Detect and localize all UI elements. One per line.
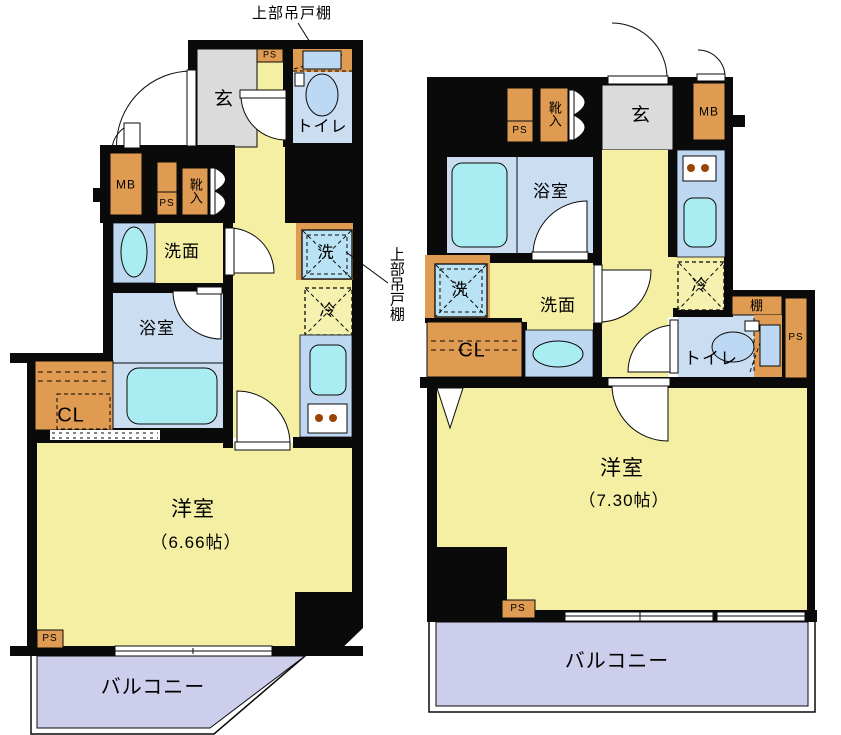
door-leaf bbox=[124, 123, 140, 148]
annotation-top-hanging-cabinet: 上部吊戸棚 bbox=[252, 6, 332, 22]
kitchen-sink bbox=[684, 198, 716, 247]
left-mb-label: MB bbox=[116, 179, 136, 192]
door-leaf bbox=[240, 90, 286, 98]
right-unit bbox=[420, 23, 817, 712]
annotation-side-hanging-cabinet: 上部吊戸棚 bbox=[388, 247, 404, 322]
washbasin bbox=[533, 341, 583, 367]
bathtub bbox=[127, 368, 217, 424]
right-ps-toilet-label: PS bbox=[788, 333, 803, 344]
door-leaf bbox=[532, 252, 588, 260]
wall bbox=[188, 40, 363, 49]
left-bathroom-label: 浴室 bbox=[139, 320, 175, 338]
right-balcony-label: バルコニー bbox=[565, 652, 670, 673]
right-entrance-label: 玄 bbox=[631, 106, 651, 126]
wall bbox=[103, 215, 113, 363]
wall bbox=[668, 150, 677, 257]
wall bbox=[293, 437, 363, 448]
right-shoe-cabinet-label: 靴入 bbox=[547, 101, 561, 127]
corridor-floor bbox=[233, 147, 285, 223]
wall bbox=[427, 388, 437, 548]
wall bbox=[352, 40, 363, 597]
left-shoe-cabinet-label: 靴入 bbox=[188, 178, 202, 204]
door-leaf bbox=[697, 74, 725, 81]
left-room-size-label: （6.66帖） bbox=[150, 534, 241, 552]
left-washroom-label: 洗面 bbox=[164, 243, 200, 261]
wall bbox=[725, 83, 733, 150]
wall bbox=[725, 150, 733, 257]
right-washroom-label: 洗面 bbox=[540, 297, 576, 315]
floorplan-image: 上部吊戸棚 上部吊戸棚 玄 トイレ PS MB PS 靴入 洗面 浴室 CL 洗… bbox=[0, 0, 841, 735]
door-swing bbox=[698, 50, 725, 77]
wall bbox=[427, 157, 447, 257]
door-leaf bbox=[670, 320, 678, 373]
wall-corner-block bbox=[427, 547, 507, 620]
left-ps-bottom-label: PS bbox=[42, 634, 57, 645]
stove bbox=[308, 404, 347, 433]
right-fridge-label: 冷 bbox=[691, 279, 708, 296]
wall-stub bbox=[93, 188, 103, 202]
bathtub bbox=[452, 163, 507, 247]
entrance-door-leaf bbox=[608, 76, 668, 84]
right-mb-label: MB bbox=[699, 106, 719, 119]
right-shelf-label: 棚 bbox=[750, 299, 764, 313]
wall-stub bbox=[733, 115, 745, 127]
kitchen-sink bbox=[310, 345, 346, 395]
toilet-handle bbox=[295, 73, 304, 86]
wall bbox=[593, 323, 602, 380]
wall-stub bbox=[10, 353, 27, 363]
left-room-label: 洋室 bbox=[171, 499, 215, 521]
left-ps-top-label: PS bbox=[263, 50, 277, 59]
left-balcony-label: バルコニー bbox=[101, 678, 206, 699]
left-closet-label: CL bbox=[57, 406, 85, 427]
door-swing bbox=[612, 23, 667, 78]
left-entrance-label: 玄 bbox=[214, 90, 234, 110]
stove-burner bbox=[329, 414, 337, 422]
right-toilet-label: トイレ bbox=[684, 350, 738, 368]
door-leaf bbox=[235, 442, 290, 450]
right-room-size-label: （7.30帖） bbox=[578, 492, 669, 510]
left-washer-label: 洗 bbox=[317, 246, 334, 263]
left-fridge-label: 冷 bbox=[319, 304, 336, 321]
stove-burner bbox=[315, 414, 323, 422]
door-leaf bbox=[225, 228, 234, 275]
wall bbox=[807, 290, 815, 620]
washbasin bbox=[121, 227, 147, 277]
right-washer-label: 洗 bbox=[451, 283, 468, 300]
toilet-bowl bbox=[306, 74, 338, 116]
stove-burner bbox=[687, 164, 695, 172]
toilet-handle bbox=[745, 321, 759, 331]
door-leaf bbox=[197, 287, 222, 294]
wall bbox=[285, 143, 363, 223]
right-ps-top-label: PS bbox=[512, 126, 527, 137]
left-unit bbox=[10, 40, 363, 734]
right-ps-bottom-label: PS bbox=[510, 604, 525, 615]
right-closet-label: CL bbox=[458, 341, 486, 362]
wall bbox=[673, 77, 693, 150]
right-room-label: 洋室 bbox=[600, 458, 644, 480]
toilet-tank bbox=[760, 325, 780, 366]
bifold-door bbox=[210, 168, 215, 215]
stove-burner bbox=[701, 164, 709, 172]
right-bathroom-label: 浴室 bbox=[533, 183, 569, 201]
bifold-door bbox=[569, 90, 574, 140]
door-leaf bbox=[594, 265, 602, 323]
left-toilet-label: トイレ bbox=[296, 120, 347, 137]
left-ps-mid-label: PS bbox=[159, 199, 174, 210]
door-leaf bbox=[608, 378, 670, 386]
toilet-tank bbox=[303, 51, 341, 69]
entrance-door-leaf bbox=[187, 70, 196, 146]
wall bbox=[593, 150, 602, 265]
